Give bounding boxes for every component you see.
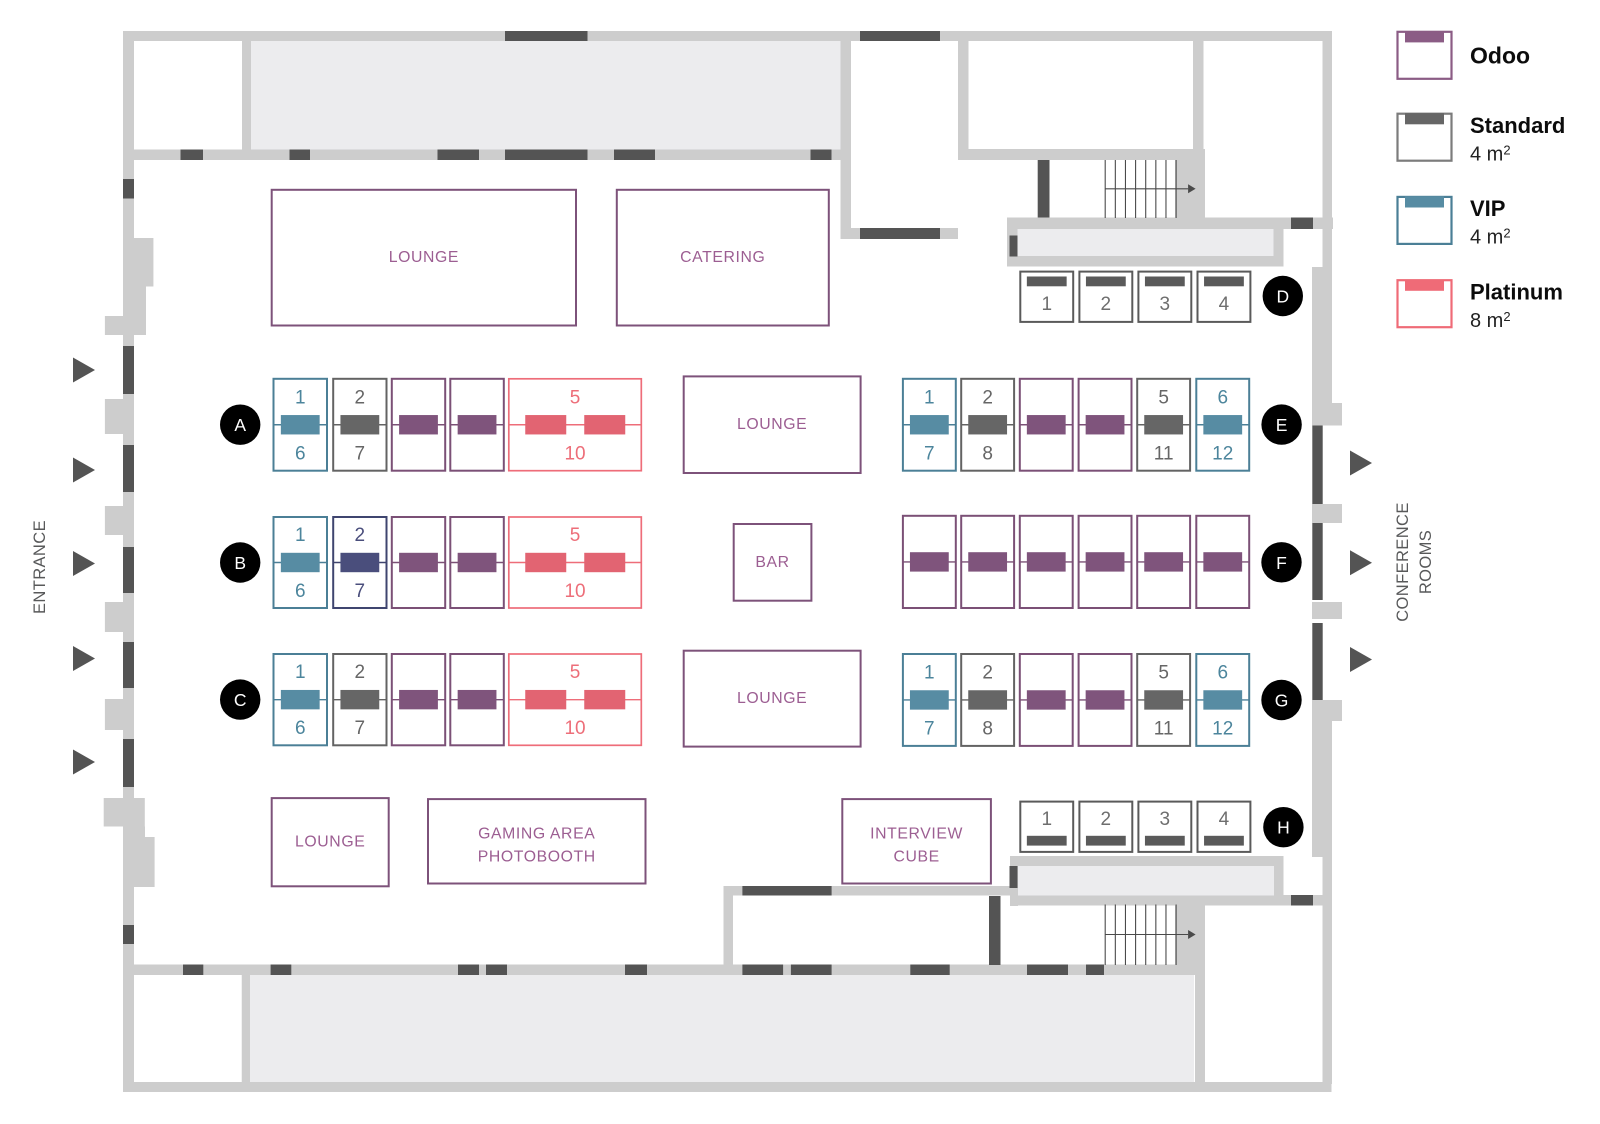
svg-text:F: F	[1276, 553, 1287, 573]
svg-text:2: 2	[355, 662, 366, 683]
svg-text:10: 10	[564, 718, 585, 739]
svg-text:2: 2	[355, 525, 366, 546]
svg-text:GAMING AREA: GAMING AREA	[478, 825, 595, 842]
svg-text:PHOTOBOOTH: PHOTOBOOTH	[478, 848, 596, 865]
svg-text:Platinum: Platinum	[1470, 279, 1563, 304]
svg-text:3: 3	[1160, 809, 1171, 830]
svg-text:11: 11	[1154, 718, 1174, 739]
svg-text:12: 12	[1212, 718, 1233, 739]
svg-text:H: H	[1277, 818, 1290, 838]
svg-text:4 m2: 4 m2	[1470, 226, 1511, 249]
svg-text:6: 6	[1217, 662, 1228, 683]
svg-text:8 m2: 8 m2	[1470, 309, 1511, 332]
svg-text:4 m2: 4 m2	[1470, 143, 1511, 166]
svg-text:12: 12	[1212, 443, 1233, 464]
svg-text:LOUNGE: LOUNGE	[295, 834, 365, 851]
svg-text:LOUNGE: LOUNGE	[389, 249, 459, 266]
svg-text:1: 1	[1041, 294, 1052, 315]
svg-text:E: E	[1276, 415, 1288, 435]
svg-text:10: 10	[564, 443, 585, 464]
svg-text:4: 4	[1219, 809, 1230, 830]
svg-text:6: 6	[295, 581, 306, 602]
svg-text:5: 5	[570, 525, 581, 546]
svg-text:7: 7	[355, 718, 366, 739]
svg-text:CATERING: CATERING	[680, 249, 765, 266]
svg-text:C: C	[234, 690, 247, 710]
svg-text:5: 5	[570, 662, 581, 683]
svg-text:LOUNGE: LOUNGE	[737, 690, 807, 707]
svg-text:4: 4	[1219, 294, 1230, 315]
svg-text:5: 5	[1158, 662, 1169, 683]
svg-text:6: 6	[295, 443, 306, 464]
svg-text:ROOMS: ROOMS	[1417, 530, 1435, 594]
svg-text:BAR: BAR	[755, 554, 789, 571]
svg-text:1: 1	[924, 662, 935, 683]
svg-text:7: 7	[924, 443, 935, 464]
svg-text:1: 1	[924, 387, 935, 408]
svg-text:3: 3	[1160, 294, 1171, 315]
svg-text:CUBE: CUBE	[893, 848, 939, 865]
svg-text:2: 2	[1101, 294, 1112, 315]
svg-text:VIP: VIP	[1470, 196, 1505, 221]
svg-text:B: B	[234, 553, 246, 573]
svg-text:2: 2	[982, 387, 993, 408]
svg-text:INTERVIEW: INTERVIEW	[870, 825, 963, 842]
svg-text:10: 10	[564, 581, 585, 602]
svg-text:2: 2	[1101, 809, 1112, 830]
svg-text:8: 8	[982, 718, 993, 739]
svg-text:6: 6	[295, 718, 306, 739]
svg-text:Odoo: Odoo	[1470, 43, 1530, 69]
svg-text:D: D	[1276, 287, 1289, 307]
svg-text:G: G	[1275, 691, 1289, 711]
svg-text:6: 6	[1217, 387, 1228, 408]
svg-text:Standard: Standard	[1470, 113, 1565, 138]
svg-text:5: 5	[1158, 387, 1169, 408]
svg-text:ENTRANCE: ENTRANCE	[31, 520, 49, 614]
svg-text:2: 2	[355, 387, 366, 408]
svg-text:8: 8	[982, 443, 993, 464]
svg-text:A: A	[234, 415, 246, 435]
svg-text:LOUNGE: LOUNGE	[737, 416, 807, 433]
svg-text:1: 1	[295, 525, 306, 546]
svg-text:5: 5	[570, 387, 581, 408]
svg-text:7: 7	[355, 443, 366, 464]
svg-text:CONFERENCE: CONFERENCE	[1394, 502, 1412, 622]
svg-text:11: 11	[1154, 443, 1174, 464]
svg-text:2: 2	[982, 662, 993, 683]
svg-text:1: 1	[295, 387, 306, 408]
svg-text:1: 1	[295, 662, 306, 683]
svg-text:7: 7	[355, 581, 366, 602]
svg-text:1: 1	[1041, 809, 1052, 830]
svg-text:7: 7	[924, 718, 935, 739]
